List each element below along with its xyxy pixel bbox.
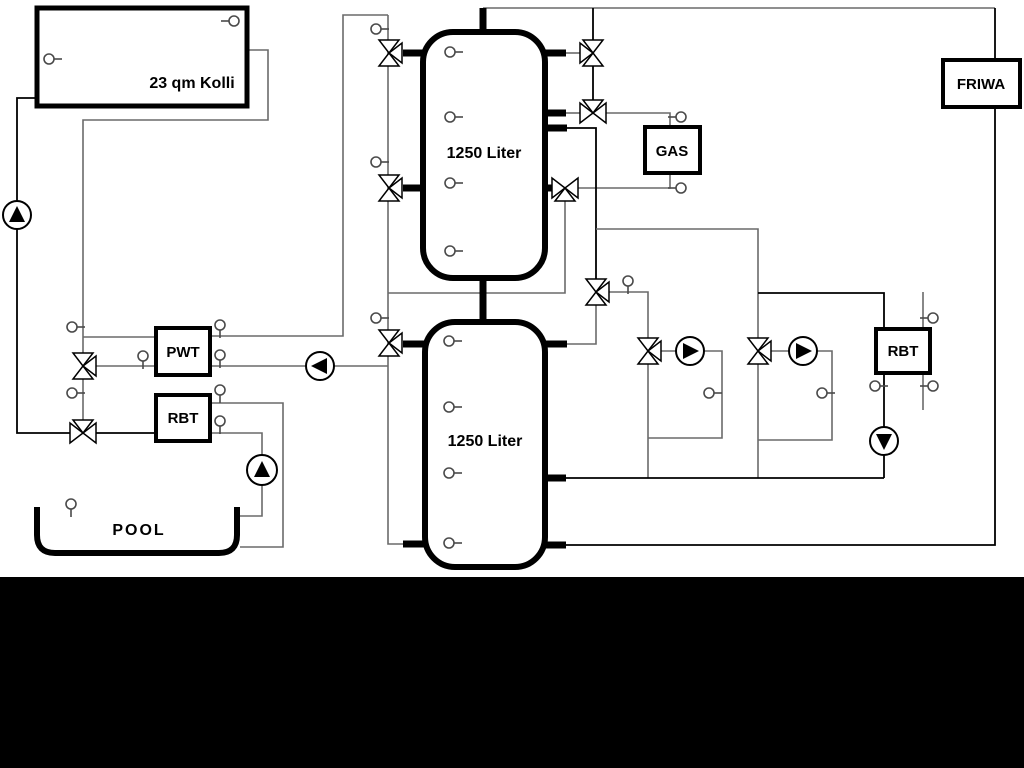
pipe	[566, 107, 995, 545]
sensor-icon	[870, 381, 880, 391]
sensor-icon	[445, 112, 455, 122]
sensor-icon	[215, 385, 225, 395]
schematic-canvas: 23 qm Kolli1250 Liter1250 LiterPWTRBTGAS…	[0, 0, 1024, 768]
label-pool: POOL	[112, 522, 165, 539]
pipe	[567, 305, 596, 344]
sensor-icon	[817, 388, 827, 398]
pipe	[596, 229, 758, 338]
bottom-black-bar	[0, 577, 1024, 768]
label-collector: 23 qm Kolli	[149, 75, 234, 92]
sensor-icon	[445, 47, 455, 57]
schematic-page: 23 qm Kolli1250 Liter1250 LiterPWTRBTGAS…	[0, 0, 1024, 768]
sensor-icon	[676, 112, 686, 122]
sensor-icon	[445, 246, 455, 256]
label-rbt-left: RBT	[168, 410, 199, 427]
sensor-icon	[444, 468, 454, 478]
label-friwa: FRIWA	[957, 76, 1005, 93]
pipe	[567, 128, 596, 279]
sensor-icon	[371, 157, 381, 167]
sensor-icon	[44, 54, 54, 64]
label-tank-bottom: 1250 Liter	[448, 433, 523, 450]
sensor-icon	[67, 322, 77, 332]
sensor-icon	[215, 416, 225, 426]
sensor-icon	[623, 276, 633, 286]
pipe	[609, 292, 648, 338]
label-rbt-right: RBT	[888, 343, 919, 360]
sensor-icon	[371, 24, 381, 34]
pipe	[606, 113, 670, 127]
pipe	[388, 15, 404, 544]
pipe	[758, 293, 884, 329]
sensor-icon	[928, 313, 938, 323]
label-pwt: PWT	[166, 344, 199, 361]
sensor-icon	[444, 402, 454, 412]
sensor-icon	[445, 178, 455, 188]
sensor-icon	[215, 350, 225, 360]
sensor-icon	[371, 313, 381, 323]
sensor-icon	[66, 499, 76, 509]
sensor-icon	[444, 336, 454, 346]
pipe	[17, 98, 70, 433]
label-gas: GAS	[656, 143, 689, 160]
sensor-icon	[444, 538, 454, 548]
sensor-icon	[67, 388, 77, 398]
sensor-icon	[704, 388, 714, 398]
pipe	[578, 173, 670, 188]
label-tank-top: 1250 Liter	[447, 145, 522, 162]
sensor-icon	[229, 16, 239, 26]
sensor-icon	[215, 320, 225, 330]
sensor-icon	[928, 381, 938, 391]
sensor-icon	[676, 183, 686, 193]
sensor-icon	[138, 351, 148, 361]
